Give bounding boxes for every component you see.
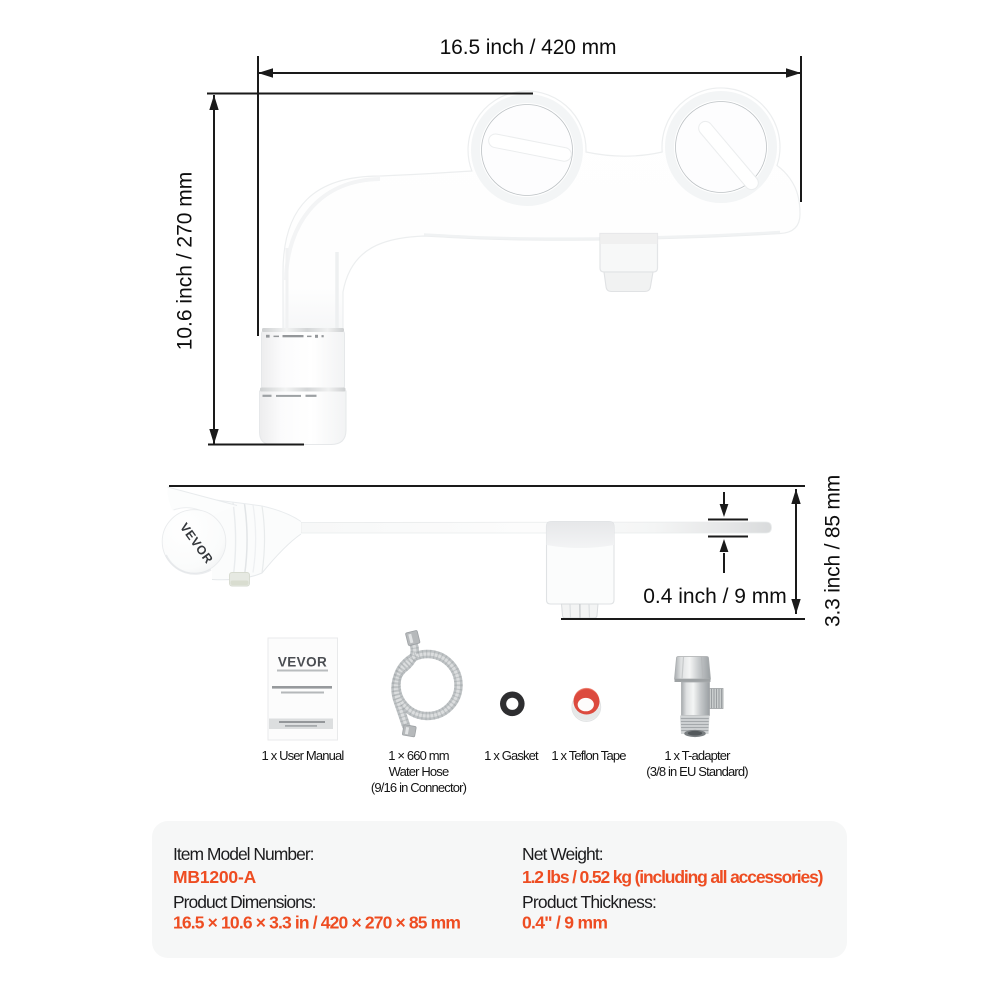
svg-text:16.5 inch / 420 mm: 16.5 inch / 420 mm (440, 36, 617, 59)
svg-text:(3/8 in EU Standard): (3/8 in EU Standard) (646, 764, 748, 779)
svg-text:1 x Gasket: 1 x Gasket (484, 748, 539, 763)
svg-text:Water Hose: Water Hose (389, 764, 449, 779)
svg-text:Net Weight:: Net Weight: (522, 844, 603, 864)
svg-text:3.3 inch / 85 mm: 3.3 inch / 85 mm (822, 475, 845, 627)
svg-text:1.2 lbs / 0.52 kg (including a: 1.2 lbs / 0.52 kg (including all accesso… (522, 867, 823, 887)
svg-text:1 x Teflon Tape: 1 x Teflon Tape (551, 748, 626, 763)
svg-text:1 x T-adapter: 1 x T-adapter (664, 748, 731, 763)
svg-text:VEVOR: VEVOR (278, 655, 327, 670)
svg-text:Item Model Number:: Item Model Number: (173, 844, 314, 864)
svg-text:Product Thickness:: Product Thickness: (522, 892, 656, 912)
svg-text:16.5 × 10.6 × 3.3 in / 420 × 2: 16.5 × 10.6 × 3.3 in / 420 × 270 × 85 mm (173, 913, 460, 933)
svg-text:0.4 inch / 9 mm: 0.4 inch / 9 mm (643, 585, 787, 608)
svg-text:10.6 inch / 270 mm: 10.6 inch / 270 mm (174, 172, 197, 351)
svg-text:MB1200-A: MB1200-A (173, 867, 257, 887)
svg-text:(9/16 in Connector): (9/16 in Connector) (371, 780, 467, 795)
svg-text:0.4" / 9 mm: 0.4" / 9 mm (522, 913, 607, 933)
svg-text:Product Dimensions:: Product Dimensions: (173, 892, 316, 912)
svg-text:1 × 660 mm: 1 × 660 mm (388, 748, 449, 763)
svg-text:1 x User Manual: 1 x User Manual (262, 748, 345, 763)
